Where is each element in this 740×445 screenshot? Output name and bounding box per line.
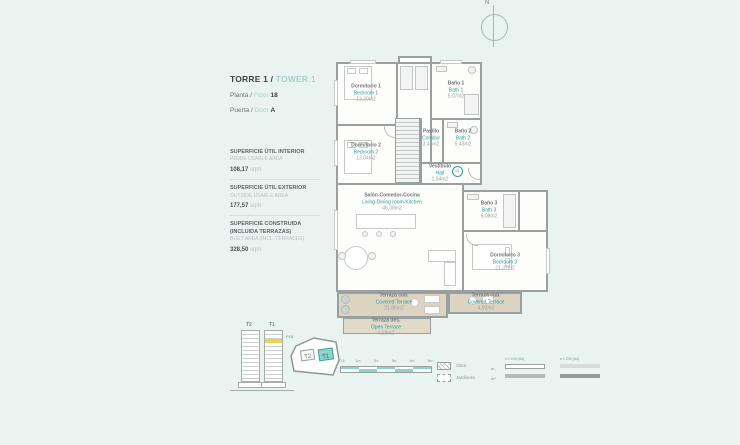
obra-label: Obra <box>456 363 466 368</box>
room-label-bedroom-2: Dormitorio 2 Bedroom 2 13,04m2 <box>351 142 381 162</box>
room-label-bath-1: Baño 1 Bath 1 5,07m2 <box>448 80 465 100</box>
shower <box>464 94 479 115</box>
elevator-1 <box>400 66 413 90</box>
entry-number-badge: 01 <box>452 166 463 177</box>
area-interior-value: 108,17 <box>230 167 248 173</box>
area-interior-unit: sqm <box>250 167 261 173</box>
area-built-en: BUILT AREA (INCL. TERRACES) <box>230 236 320 243</box>
planta-label: Planta / <box>230 92 252 99</box>
scale-a4-header: e 1:200 (A4) <box>560 357 579 361</box>
room-label-living: Salón-Comedor-Cocina Living-Dining room-… <box>362 192 422 212</box>
scale-tick: 3m <box>392 359 397 363</box>
window <box>334 80 338 106</box>
floorplan-page: TORRE 1 / TOWER 1 Planta / Floor 18 Puer… <box>0 0 740 445</box>
surface-areas: SUPERFICIE ÚTIL INTERIOR INSIDE USABLE A… <box>230 144 320 259</box>
room-label-terrace-covered-left: Terraza cub. Covered Terrace 21,86m2 <box>376 292 413 312</box>
room-label-bath-2: Baño 2 Bath 2 5,43m2 <box>455 128 472 148</box>
page-title: TORRE 1 / TOWER 1 <box>230 74 325 84</box>
toilet <box>468 66 476 74</box>
ground-line <box>230 390 294 391</box>
sink <box>467 194 479 200</box>
area-exterior-es: SUPERFICIE ÚTIL EXTERIOR <box>230 185 320 192</box>
north-compass-icon <box>481 14 508 41</box>
area-built-value: 328,50 <box>230 247 248 253</box>
jardinera-label: Jardinera <box>456 375 475 380</box>
room-label-corridor: Pasillo Corridor 3,48m2 <box>422 128 440 148</box>
area-built-unit: sqm <box>250 247 261 253</box>
room-label-hall: Vestíbulo Hall 1,54m2 <box>429 163 451 183</box>
planta-line: Planta / Floor 18 <box>230 92 325 99</box>
window <box>546 248 550 274</box>
scale-a3-bar-1 <box>505 364 545 369</box>
tower-t2-elevation <box>241 330 260 382</box>
chair <box>368 252 376 260</box>
window <box>350 60 376 64</box>
room-label-terrace-covered-right: Terraza cub. Covered Terrace 4,92m2 <box>468 292 505 312</box>
wall-pasillo-bath2 <box>442 118 444 164</box>
terrace-sofa <box>424 306 440 314</box>
room-label-bedroom-1: Dormitorio 1 Bedroom 1 13,20m2 <box>351 83 381 103</box>
north-label: N <box>485 0 489 6</box>
stool <box>376 231 382 237</box>
room-label-bedroom-3: Dormitorio 3 Bedroom 3 21,37m2 <box>490 252 520 272</box>
terrace-sofa <box>424 295 440 303</box>
door-label: Door <box>255 107 269 114</box>
area-exterior: SUPERFICIE ÚTIL EXTERIOR OUTSIDE USABLE … <box>230 179 320 215</box>
window <box>334 210 338 250</box>
area-interior-es: SUPERFICIE ÚTIL INTERIOR <box>230 149 320 156</box>
chair <box>338 252 346 260</box>
wall-bath3-closet <box>518 190 520 232</box>
elevator-2 <box>415 66 428 90</box>
legend-row1-label: m. <box>491 366 495 371</box>
sofa <box>444 262 456 286</box>
pillow <box>359 68 368 74</box>
door-letter: A <box>270 107 275 114</box>
site-plan: T2 T1 <box>288 334 342 382</box>
floor-label: Floor <box>254 92 269 99</box>
scale-a3-bar-2 <box>505 374 545 378</box>
stool <box>390 231 396 237</box>
torre-label: TORRE 1 / <box>230 74 273 84</box>
scale-a3-header: e 1:100 (A3) <box>505 357 524 361</box>
area-interior: SUPERFICIE ÚTIL INTERIOR INSIDE USABLE A… <box>230 144 320 179</box>
scale-a4-bar-2 <box>560 374 600 378</box>
pillow <box>347 68 356 74</box>
tower-t2-label: T2 <box>246 322 252 328</box>
room-label-terrace-open: Terraza des. Open Terrace 4,59m2 <box>371 317 401 337</box>
tower-label: TOWER 1 <box>276 74 316 84</box>
obra-swatch <box>437 362 451 370</box>
area-exterior-value: 177,57 <box>230 203 248 209</box>
planter <box>341 295 350 304</box>
legend-row2-label: m² <box>491 376 496 381</box>
sink <box>436 66 447 72</box>
floor-number: 18 <box>270 92 277 99</box>
scale-tick: 5m <box>428 359 433 363</box>
scale-bar-segments-bottom <box>340 369 432 373</box>
tower-t1-elevation <box>264 330 283 382</box>
scale-tick: 2m <box>374 359 379 363</box>
window <box>334 140 338 166</box>
scale-tick: 1m <box>356 359 361 363</box>
area-built-es: SUPERFICIE CONSTRUIDA (INCLUIDA TERRAZAS… <box>230 221 320 236</box>
wall-bath3-bed3 <box>462 230 548 232</box>
tower-t1-label: T1 <box>269 322 275 328</box>
scale-bar: 0,5 1m 2m 3m 4m 5m <box>340 359 432 375</box>
jardinera-swatch <box>437 374 451 382</box>
kitchen-island <box>356 214 416 229</box>
title-block: TORRE 1 / TOWER 1 Planta / Floor 18 Puer… <box>230 74 325 114</box>
area-interior-en: INSIDE USABLE AREA <box>230 156 320 163</box>
area-exterior-unit: sqm <box>250 203 261 209</box>
stairs <box>395 118 420 183</box>
highlighted-floor-band <box>265 339 282 343</box>
puerta-line: Puerta / Door A <box>230 107 325 114</box>
tower-t2-base <box>238 382 263 388</box>
stool <box>362 231 368 237</box>
room-label-bath-3: Baño 3 Bath 3 5,08m2 <box>481 200 498 220</box>
sofa <box>428 250 456 262</box>
area-built: SUPERFICIE CONSTRUIDA (INCLUIDA TERRAZAS… <box>230 215 320 259</box>
scale-tick: 0,5 <box>340 359 345 363</box>
tower-t1-base <box>261 382 286 388</box>
scale-tick: 4m <box>410 359 415 363</box>
dining-table <box>344 246 368 270</box>
wall-core-baths <box>430 62 432 164</box>
puerta-label: Puerta / <box>230 107 253 114</box>
bathtub <box>503 194 516 228</box>
area-exterior-en: OUTSIDE USABLE AREA <box>230 193 320 200</box>
planter <box>341 305 350 314</box>
window <box>440 60 462 64</box>
wall-bath1-bath2 <box>430 118 482 120</box>
sink <box>447 122 458 128</box>
scale-a4-bar-1 <box>560 364 600 368</box>
